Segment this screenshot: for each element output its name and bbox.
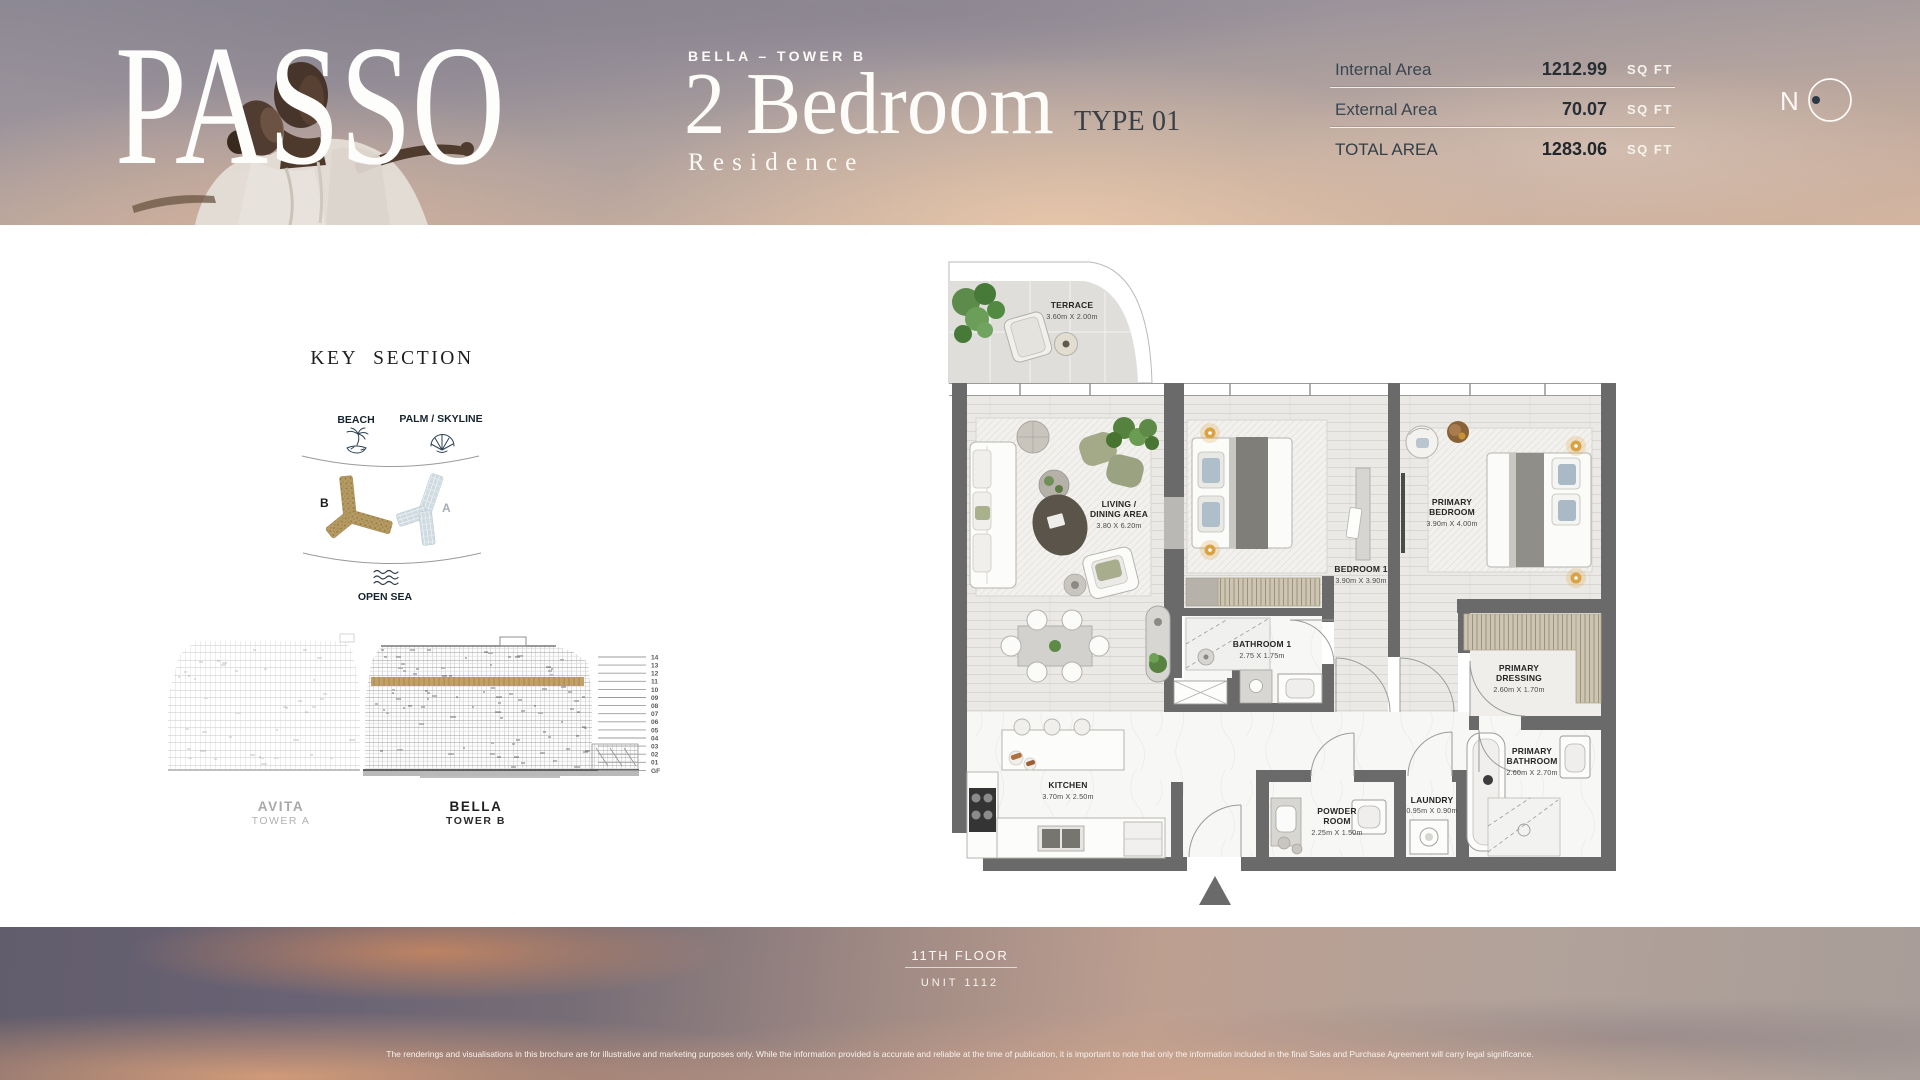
svg-text:PASSO: PASSO (115, 20, 505, 190)
svg-text:PRIMARY: PRIMARY (1432, 497, 1472, 507)
svg-text:BATHROOM 1: BATHROOM 1 (1233, 639, 1292, 649)
svg-text:ROOM: ROOM (1323, 816, 1350, 826)
svg-text:08: 08 (651, 703, 659, 710)
svg-text:06: 06 (651, 719, 659, 726)
svg-text:BEDROOM 1: BEDROOM 1 (1334, 564, 1387, 574)
svg-text:3.60m X 2.00m: 3.60m X 2.00m (1046, 312, 1097, 321)
svg-text:2.60m X 2.70m: 2.60m X 2.70m (1506, 768, 1557, 777)
svg-text:09: 09 (651, 695, 659, 702)
svg-text:3.70m X 2.50m: 3.70m X 2.50m (1042, 792, 1093, 801)
svg-text:3.80 X 6.20m: 3.80 X 6.20m (1096, 521, 1141, 530)
svg-text:11: 11 (651, 679, 658, 686)
svg-text:13: 13 (651, 663, 659, 670)
svg-text:14: 14 (651, 654, 659, 661)
svg-text:KITCHEN: KITCHEN (1048, 780, 1087, 790)
svg-text:POWDER: POWDER (1317, 806, 1356, 816)
svg-text:02: 02 (651, 752, 659, 759)
svg-text:2.25m X 1.50m: 2.25m X 1.50m (1311, 828, 1362, 837)
svg-text:04: 04 (651, 735, 659, 742)
svg-text:BEDROOM: BEDROOM (1429, 507, 1475, 517)
svg-text:DRESSING: DRESSING (1496, 673, 1542, 683)
svg-text:2.75 X 1.75m: 2.75 X 1.75m (1239, 651, 1284, 660)
svg-text:03: 03 (651, 744, 659, 751)
svg-text:2.60m X 1.70m: 2.60m X 1.70m (1493, 685, 1544, 694)
svg-text:0.95m X 0.90m: 0.95m X 0.90m (1406, 806, 1457, 815)
svg-text:TERRACE: TERRACE (1051, 300, 1094, 310)
svg-text:GF: GF (651, 768, 660, 775)
svg-text:LIVING /: LIVING / (1102, 499, 1137, 509)
svg-text:12: 12 (651, 671, 659, 678)
svg-text:3.90m X 4.00m: 3.90m X 4.00m (1426, 519, 1477, 528)
svg-text:01: 01 (651, 760, 659, 767)
svg-text:DINING AREA: DINING AREA (1090, 509, 1148, 519)
svg-text:BATHROOM: BATHROOM (1506, 756, 1557, 766)
svg-text:3.90m X 3.90m: 3.90m X 3.90m (1335, 576, 1386, 585)
svg-text:N: N (1780, 86, 1799, 116)
svg-text:05: 05 (651, 727, 659, 734)
svg-text:07: 07 (651, 711, 659, 718)
svg-text:10: 10 (651, 687, 659, 694)
svg-text:PRIMARY: PRIMARY (1512, 746, 1552, 756)
svg-text:LAUNDRY: LAUNDRY (1411, 795, 1454, 805)
svg-text:PRIMARY: PRIMARY (1499, 663, 1539, 673)
